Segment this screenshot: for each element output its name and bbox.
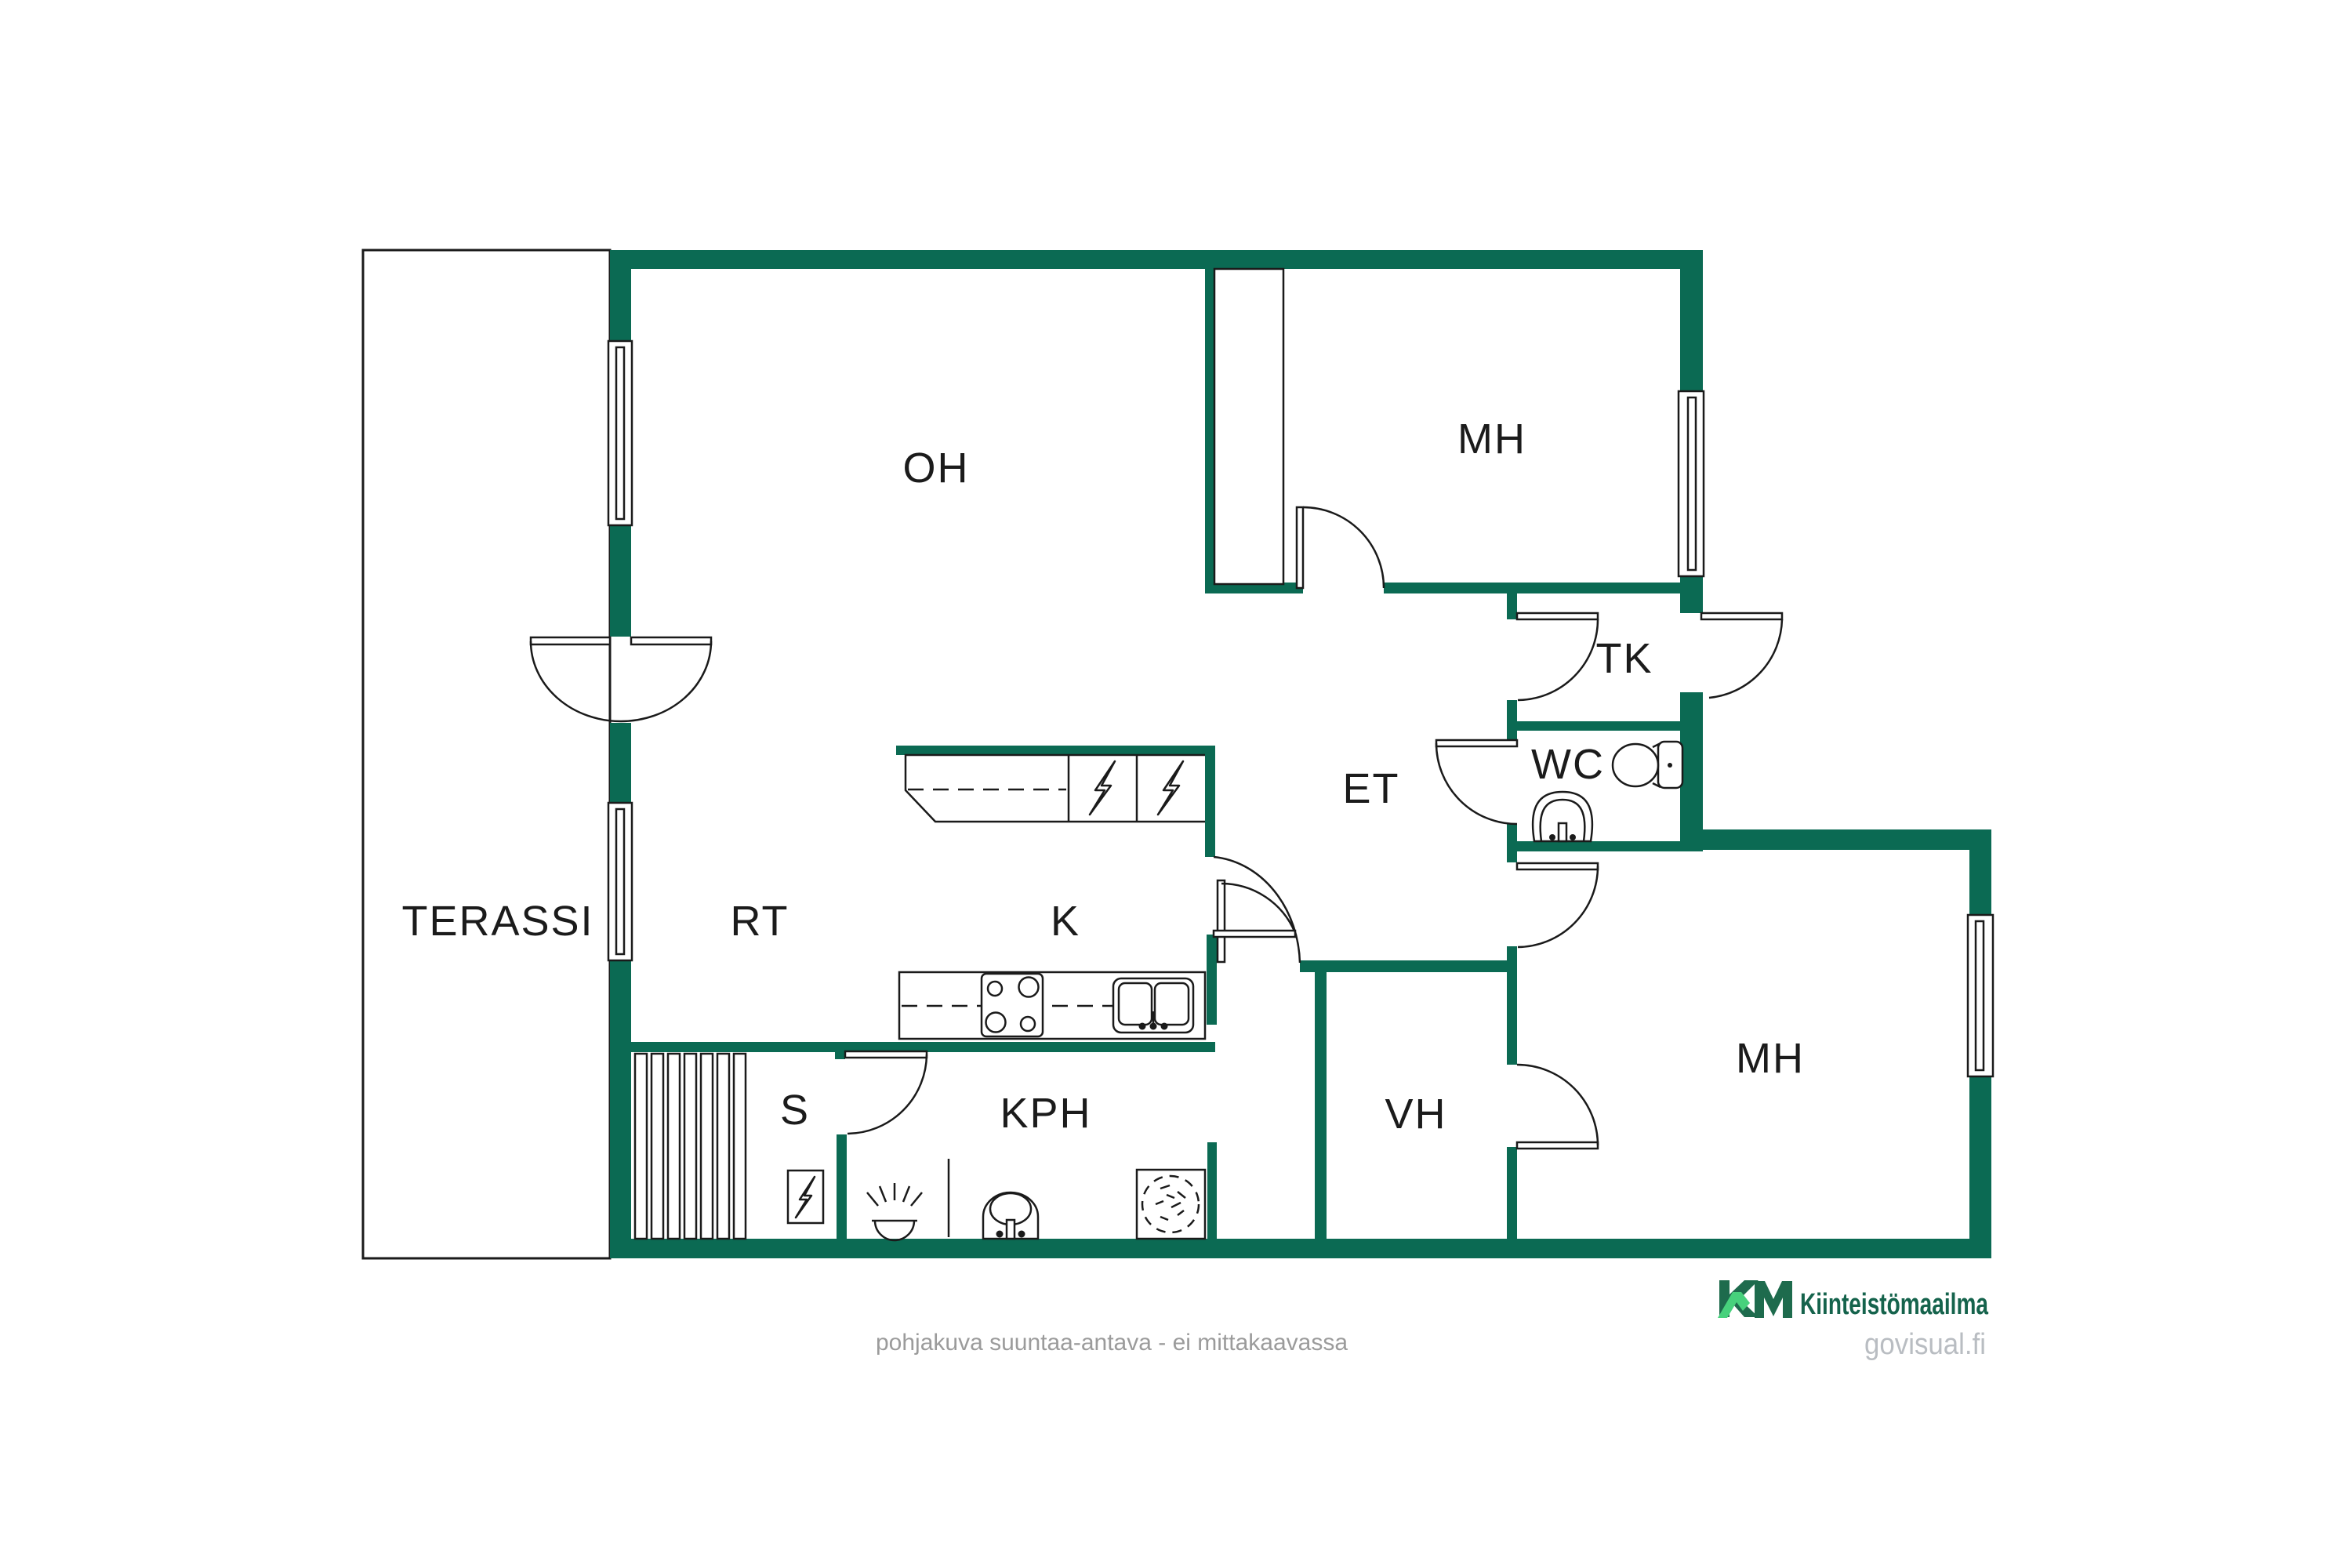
brand-name: Kiinteistömaailma bbox=[1800, 1288, 1989, 1321]
walls bbox=[610, 250, 1991, 1258]
room-label-rt: RT bbox=[730, 898, 789, 945]
sauna-stove-icon bbox=[788, 1171, 823, 1223]
wall-segment bbox=[1507, 823, 1517, 862]
wall-segment bbox=[1680, 250, 1703, 391]
wall-segment bbox=[835, 1052, 845, 1059]
window-icon bbox=[1679, 391, 1704, 576]
wall-segment bbox=[1507, 700, 1517, 741]
window-icon bbox=[1968, 915, 1993, 1076]
wall-segment bbox=[1517, 721, 1682, 731]
room-label-wc: WC bbox=[1531, 741, 1605, 788]
wall-segment bbox=[896, 746, 1215, 755]
doors bbox=[531, 507, 1782, 1149]
toilet-icon bbox=[1613, 742, 1682, 788]
wall-segment bbox=[610, 250, 1703, 269]
wc-washbasin-icon bbox=[1533, 792, 1592, 841]
footer: pohjakuva suuntaa-antava - ei mittakaava… bbox=[876, 1280, 1989, 1361]
kph-washbasin-icon bbox=[983, 1192, 1038, 1239]
hall-door bbox=[1214, 857, 1300, 963]
room-label-et: ET bbox=[1342, 765, 1399, 812]
wc-door bbox=[1436, 740, 1517, 824]
wall-segment bbox=[1384, 583, 1703, 593]
room-label-vh: VH bbox=[1385, 1091, 1446, 1138]
kitchen-counter bbox=[899, 972, 1205, 1039]
floorplan-page: TERASSI OH MH TK ET WC RT K S KPH VH MH … bbox=[0, 0, 2352, 1568]
floor-light-icon bbox=[867, 1183, 922, 1240]
washing-machine-icon bbox=[1137, 1170, 1205, 1239]
wall-segment bbox=[1207, 1142, 1217, 1240]
walkin-closet-door bbox=[1517, 1065, 1598, 1149]
wall-segment bbox=[1680, 576, 1703, 613]
front-door bbox=[1701, 613, 1782, 698]
kitchen-sink-icon bbox=[1113, 978, 1193, 1033]
wall-segment bbox=[1207, 935, 1217, 1025]
kitchen-door bbox=[1218, 880, 1295, 962]
wall-segment bbox=[610, 723, 631, 803]
wall-segment bbox=[1315, 972, 1327, 1258]
wall-segment bbox=[610, 1239, 1991, 1258]
sauna-bench-icon bbox=[635, 1054, 746, 1239]
wall-segment bbox=[1703, 829, 1969, 850]
wall-segment bbox=[1205, 755, 1215, 857]
window-icon bbox=[608, 803, 632, 960]
wall-segment bbox=[837, 1134, 847, 1239]
closet-icon bbox=[1214, 269, 1283, 584]
freezer-icon bbox=[1158, 761, 1183, 815]
wall-segment bbox=[610, 960, 631, 1258]
wall-segment bbox=[1969, 829, 1991, 915]
wall-segment bbox=[1507, 1147, 1517, 1258]
wall-segment bbox=[610, 525, 631, 637]
window-icon bbox=[608, 341, 632, 525]
bedroom2-door bbox=[1517, 863, 1598, 947]
wall-segment bbox=[1507, 946, 1517, 1065]
wall-segment bbox=[1969, 1076, 1991, 1258]
wall-segment bbox=[1507, 593, 1517, 619]
disclaimer-text: pohjakuva suuntaa-antava - ei mittakaava… bbox=[876, 1330, 1348, 1356]
wall-segment bbox=[1680, 692, 1703, 841]
floorplan-drawing: TERASSI OH MH TK ET WC RT K S KPH VH MH … bbox=[0, 0, 2352, 1568]
kitchen-upper-cabinet bbox=[906, 755, 1205, 822]
room-label-oh: OH bbox=[903, 445, 970, 492]
wall-segment bbox=[1517, 841, 1703, 851]
room-label-k: K bbox=[1051, 898, 1080, 945]
km-logo-m bbox=[1755, 1281, 1792, 1318]
website-link[interactable]: govisual.fi bbox=[1864, 1328, 1986, 1361]
room-label-tk: TK bbox=[1595, 635, 1653, 682]
sauna-door bbox=[845, 1051, 927, 1134]
room-label-terassi: TERASSI bbox=[401, 898, 593, 945]
room-label-mh-bottom: MH bbox=[1736, 1035, 1805, 1082]
stove-icon bbox=[982, 974, 1043, 1036]
room-label-s: S bbox=[780, 1087, 810, 1134]
wall-segment bbox=[1300, 960, 1517, 972]
fridge-icon bbox=[1090, 761, 1115, 815]
km-logo-icon bbox=[1718, 1280, 1792, 1318]
terrace-outline bbox=[363, 250, 610, 1258]
bedroom-door bbox=[1297, 507, 1384, 588]
vestibule-door bbox=[1517, 613, 1598, 700]
room-label-kph: KPH bbox=[1000, 1090, 1091, 1137]
room-label-mh-top: MH bbox=[1457, 416, 1526, 463]
wall-segment bbox=[610, 250, 631, 341]
